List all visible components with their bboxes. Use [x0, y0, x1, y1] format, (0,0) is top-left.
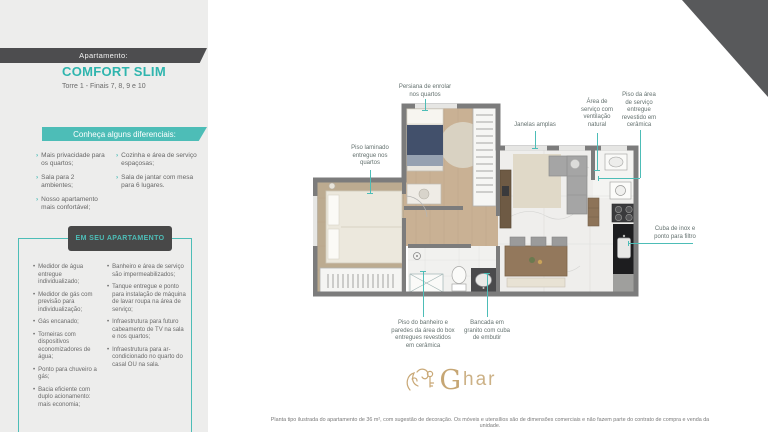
brand-logo: Ghar	[395, 360, 505, 400]
callout-tick	[367, 193, 373, 194]
callout-line	[597, 133, 598, 171]
list-item: Infraestrutura para ar-condicionado no q…	[107, 347, 187, 370]
callout-line	[629, 243, 693, 244]
list-item: Medidor de água entregue individualizado…	[33, 264, 99, 287]
list-item: Gás encanado;	[33, 319, 99, 327]
callout-tick	[628, 241, 629, 246]
callout-tick	[598, 176, 599, 181]
apartment-label: Apartamento:	[79, 51, 128, 60]
callout-piso-servico: Piso da área de serviço entregue revesti…	[610, 92, 668, 130]
callout-tick	[484, 273, 490, 274]
callout-bancada: Bancada em granito com cuba de embutir	[452, 320, 522, 343]
logo-text-g: G	[439, 367, 461, 394]
in-apartment-title: EM SEU APARTAMENTO	[76, 235, 165, 242]
callout-line	[640, 130, 641, 178]
in-apartment-header: EM SEU APARTAMENTO	[68, 226, 172, 251]
callout-tick	[420, 271, 426, 272]
callout-line	[370, 170, 371, 194]
list-item: Infraestrutura para futuro cabeamento de…	[107, 319, 187, 342]
list-item: Sala para 2 ambientes;	[36, 174, 108, 190]
master-bedroom-furniture	[320, 183, 402, 292]
callout-line	[599, 178, 640, 179]
disclaimer-text: Planta tipo ilustrada do apartamento de …	[270, 417, 710, 429]
lion-ornament-icon	[403, 365, 437, 395]
apartment-name: COMFORT SLIM	[62, 64, 166, 79]
callout-persiana: Persiana de enrolar nos quartos	[375, 84, 475, 99]
differentials-title: Conheça alguns diferenciais:	[73, 130, 176, 139]
callout-line	[535, 131, 536, 149]
list-item: Nosso apartamento mais confortável;	[36, 196, 108, 212]
tower-info: Torre 1 - Finais 7, 8, 9 e 10	[62, 83, 146, 90]
differentials-banner: Conheça alguns diferenciais:	[42, 127, 207, 141]
callout-line	[487, 274, 488, 317]
list-item: Torneiras com dispositivos economizadore…	[33, 332, 99, 362]
list-item: Mais privacidade para os quartos;	[36, 152, 108, 168]
list-item: Bacia eficiente com duplo acionamento: m…	[33, 387, 99, 410]
list-item: Ponto para chuveiro a gás;	[33, 367, 99, 382]
list-item: Tanque entregue e ponto para instalação …	[107, 284, 187, 314]
callout-line	[423, 272, 424, 317]
callout-tick	[532, 148, 538, 149]
slide: Apartamento: COMFORT SLIM Torre 1 - Fina…	[0, 0, 768, 432]
corner-decoration	[682, 0, 768, 97]
callout-tick	[594, 170, 600, 171]
list-item: Banheiro e área de serviço são impermeab…	[107, 264, 187, 279]
logo-text-har: har	[463, 369, 496, 391]
list-item: Sala de jantar com mesa para 6 lugares.	[116, 174, 202, 190]
callout-cuba-inox: Cuba de inox e ponto para filtro	[640, 226, 710, 241]
differentials-list: Mais privacidade para os quartos; Sala p…	[36, 152, 204, 218]
list-item: Cozinha e área de serviço espaçosas;	[116, 152, 202, 168]
list-item: Medidor de gás com previsão para individ…	[33, 292, 99, 315]
callout-tick	[422, 110, 428, 111]
callout-piso-laminado: Piso laminado entregue nos quartos	[338, 145, 402, 168]
in-apartment-list: Medidor de água entregue individualizado…	[33, 264, 189, 414]
apartment-banner: Apartamento:	[0, 48, 207, 63]
callout-janelas: Janelas amplas	[495, 122, 575, 130]
